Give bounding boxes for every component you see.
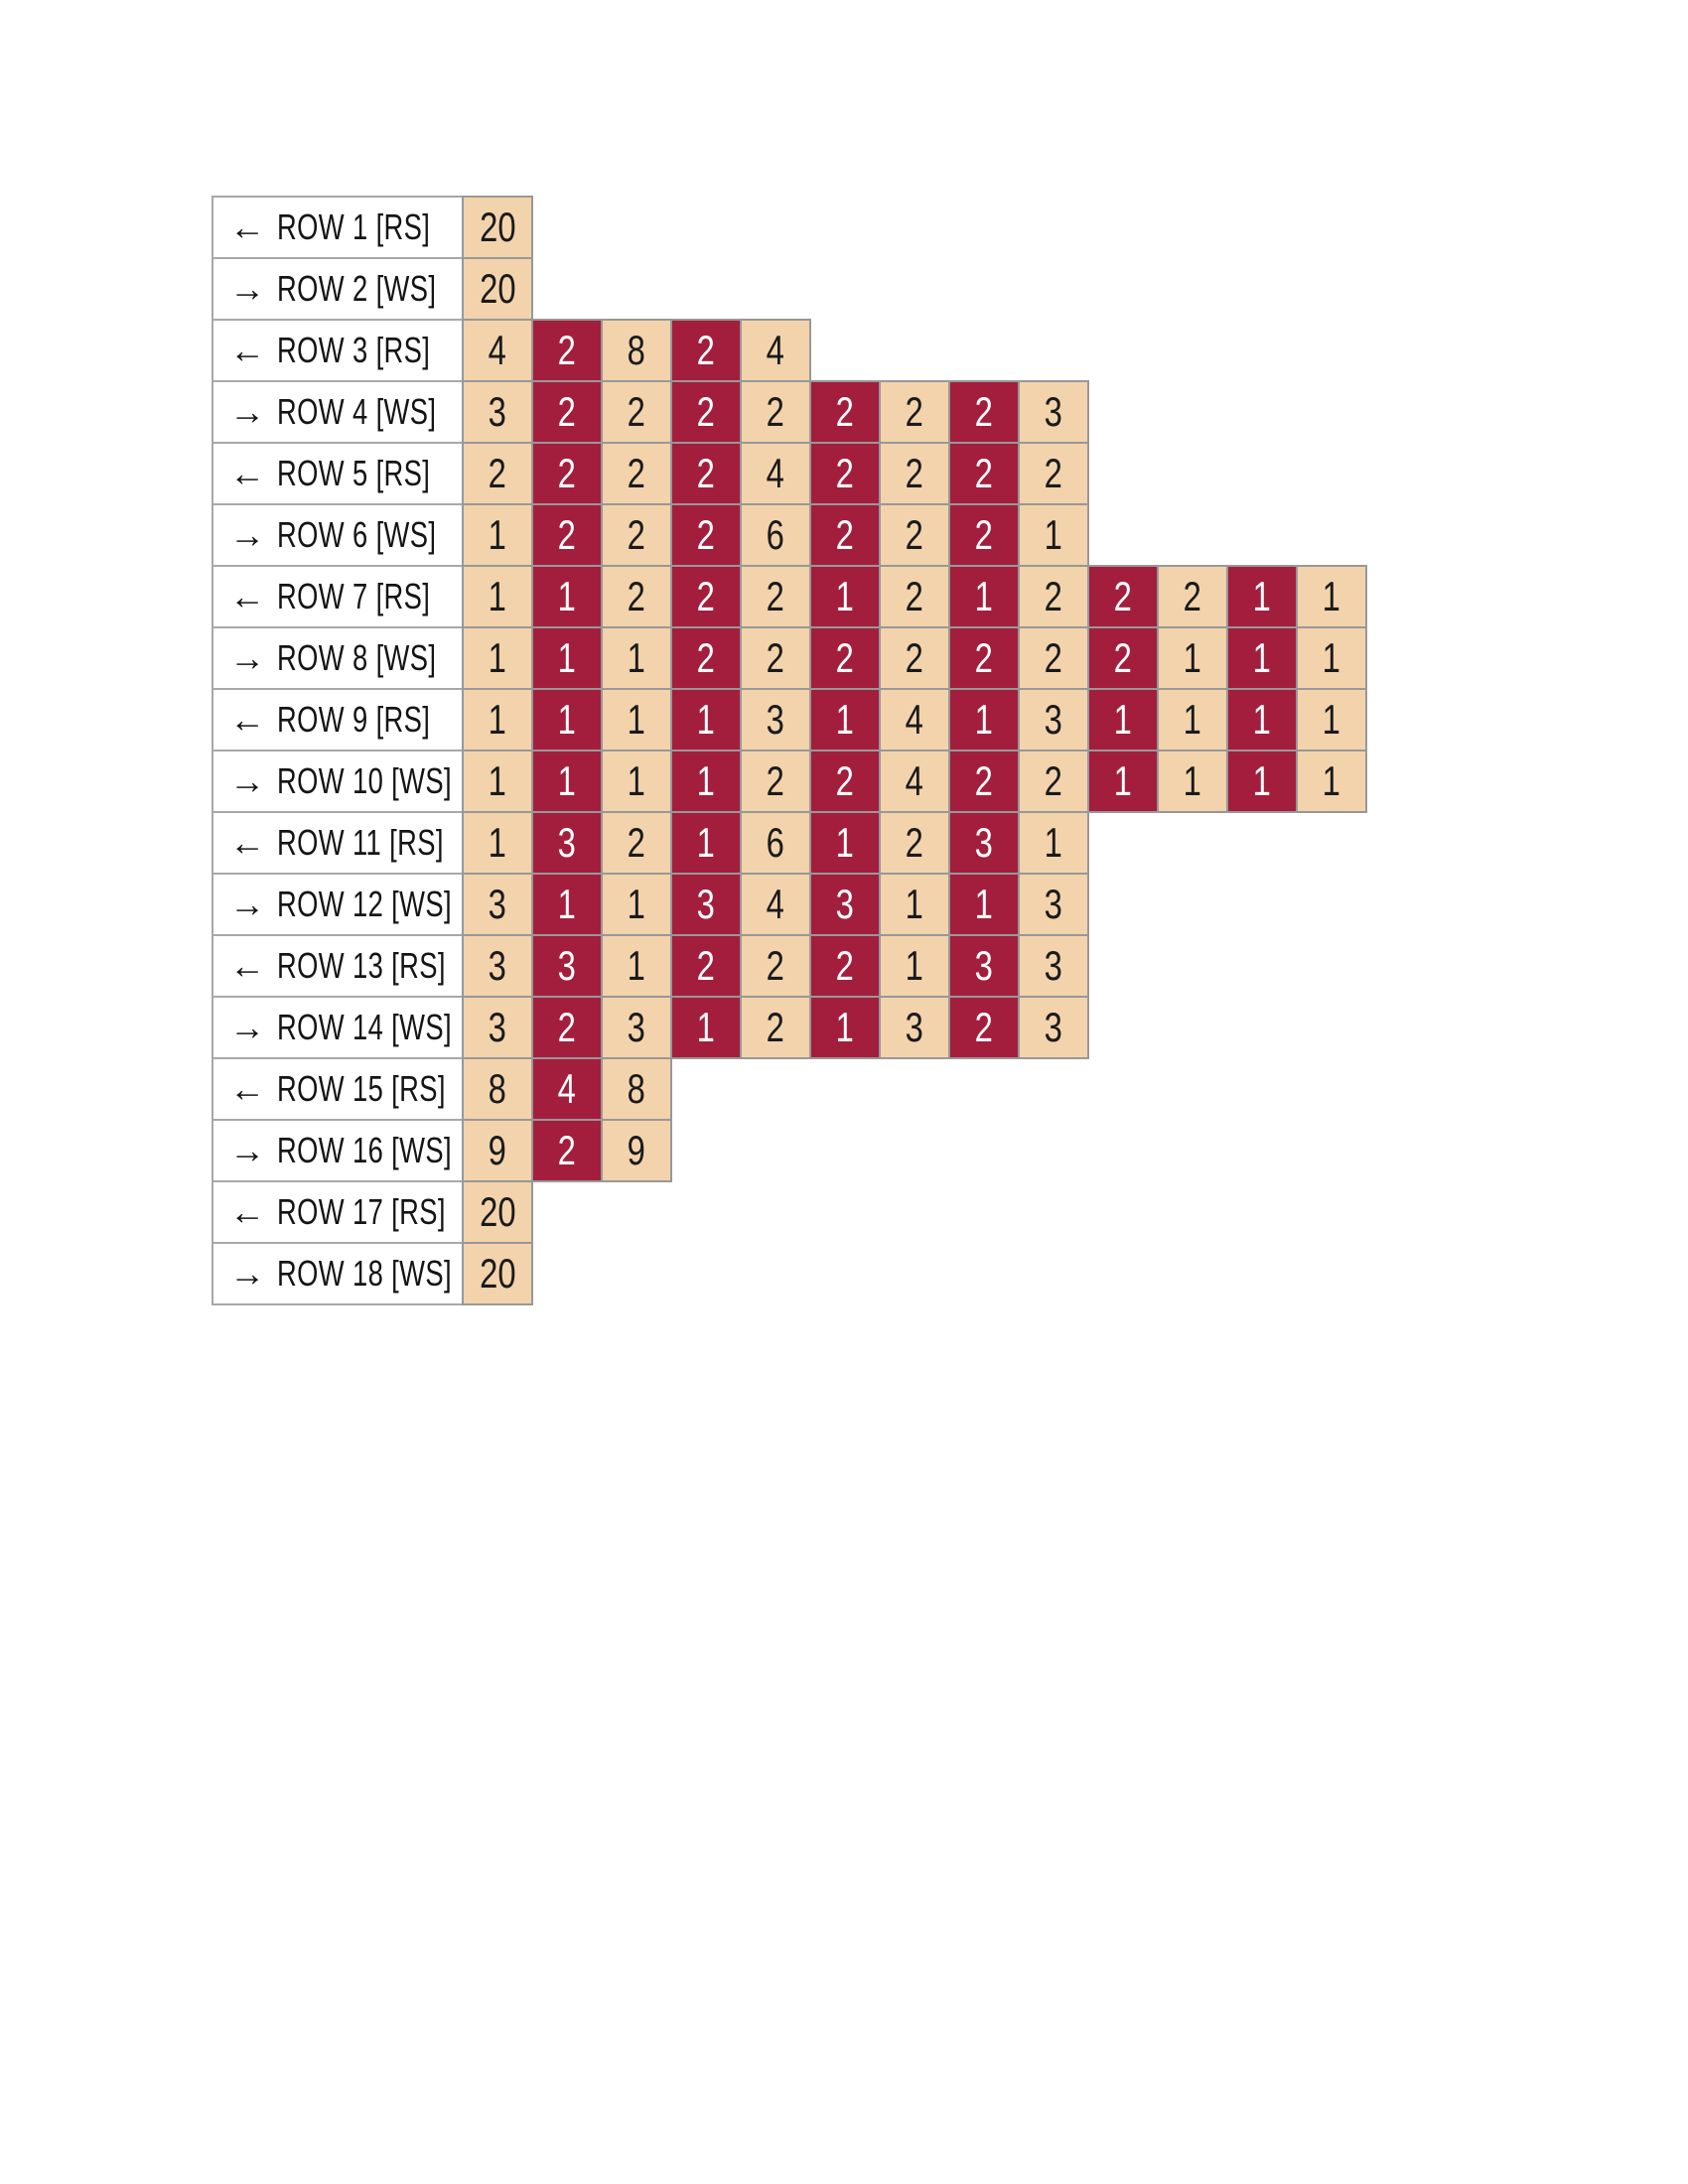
stitch-run-cell: 4 (740, 442, 811, 505)
stitch-run-cell: 8 (601, 319, 672, 382)
stitch-count: 1 (906, 945, 923, 987)
stitch-count: 2 (697, 514, 715, 556)
row-label: → ROW 6 [WS] (211, 503, 464, 567)
chart-row: → ROW 12 [WS] 311343113 (211, 873, 1367, 936)
direction-arrow-icon: → (229, 640, 265, 676)
stitch-count: 9 (628, 1130, 645, 1171)
stitch-run-cell: 1 (1087, 688, 1159, 751)
chart-row: ← ROW 15 [RS] 848 (211, 1057, 1367, 1121)
direction-arrow-icon: → (229, 271, 265, 307)
direction-arrow-icon: ← (229, 333, 265, 368)
stitch-count: 2 (558, 391, 576, 433)
stitch-run-cell: 3 (809, 873, 881, 936)
stitch-count: 4 (767, 330, 784, 371)
direction-arrow-icon: → (229, 517, 265, 553)
stitch-count: 2 (697, 576, 715, 617)
stitch-run-cell: 6 (740, 811, 811, 875)
stitch-run-cell: 3 (462, 873, 533, 936)
stitch-run-cell: 1 (1157, 626, 1228, 690)
stitch-count: 1 (836, 822, 854, 864)
stitch-count: 2 (558, 453, 576, 494)
stitch-run-cell: 20 (462, 1242, 533, 1305)
stitch-run-cell: 2 (462, 442, 533, 505)
stitch-run-cell: 1 (809, 811, 881, 875)
stitch-run-cell: 3 (670, 873, 742, 936)
direction-arrow-icon: → (229, 887, 265, 922)
direction-arrow-icon: ← (229, 209, 265, 245)
stitch-count: 2 (975, 453, 993, 494)
stitch-run-cell: 2 (1157, 565, 1228, 628)
stitch-run-cell: 3 (601, 996, 672, 1059)
stitch-run-cell: 2 (670, 565, 742, 628)
stitch-count: 3 (558, 822, 576, 864)
stitch-count: 1 (975, 699, 993, 741)
stitch-count: 3 (1045, 945, 1062, 987)
stitch-run-cell: 1 (462, 750, 533, 813)
stitch-count: 1 (836, 576, 854, 617)
stitch-run-cell: 1 (601, 934, 672, 998)
stitch-run-cell: 3 (462, 934, 533, 998)
stitch-count: 2 (767, 637, 784, 679)
stitch-count: 2 (767, 1007, 784, 1048)
stitch-run-cell: 1 (1296, 688, 1367, 751)
stitch-count: 1 (1045, 822, 1062, 864)
stitch-count: 2 (558, 330, 576, 371)
stitch-count: 1 (1184, 699, 1201, 741)
row-label-text: ROW 9 [RS] (277, 702, 430, 738)
stitch-run-cell: 2 (740, 996, 811, 1059)
stitch-run-cell: 9 (462, 1119, 533, 1182)
stitch-run-cell: 2 (948, 750, 1020, 813)
stitch-count: 3 (906, 1007, 923, 1048)
chart-row: → ROW 14 [WS] 323121323 (211, 996, 1367, 1059)
stitch-count: 1 (489, 822, 506, 864)
stitch-count: 8 (489, 1068, 506, 1110)
stitch-run-cell: 2 (879, 442, 950, 505)
stitch-count: 1 (1323, 576, 1340, 617)
stitch-count: 1 (558, 884, 576, 925)
row-label: → ROW 2 [WS] (211, 257, 464, 321)
stitch-run-cell: 1 (1087, 750, 1159, 813)
stitch-count: 20 (480, 206, 515, 248)
stitch-count: 2 (906, 576, 923, 617)
stitch-run-cell: 1 (601, 626, 672, 690)
row-label-text: ROW 7 [RS] (277, 579, 430, 614)
direction-arrow-icon: → (229, 1010, 265, 1045)
stitch-run-cell: 20 (462, 257, 533, 321)
stitch-count: 1 (697, 1007, 715, 1048)
stitch-count: 2 (628, 514, 645, 556)
direction-arrow-icon: → (229, 1133, 265, 1168)
stitch-count: 2 (836, 760, 854, 802)
stitch-run-cell: 2 (809, 380, 881, 444)
chart-row: ← ROW 3 [RS] 42824 (211, 319, 1367, 382)
stitch-run-cell: 3 (1018, 873, 1089, 936)
stitch-run-cell: 2 (601, 565, 672, 628)
stitch-run-cell: 2 (948, 380, 1020, 444)
stitch-count: 2 (697, 391, 715, 433)
row-label: ← ROW 9 [RS] (211, 688, 464, 751)
stitch-count: 2 (767, 945, 784, 987)
stitch-run-cell: 1 (809, 565, 881, 628)
stitch-count: 1 (1253, 576, 1271, 617)
stitch-run-cell: 2 (809, 750, 881, 813)
stitch-count: 1 (975, 576, 993, 617)
stitch-run-cell: 3 (879, 996, 950, 1059)
stitch-count: 3 (1045, 1007, 1062, 1048)
chart-row: → ROW 6 [WS] 122262221 (211, 503, 1367, 567)
direction-arrow-icon: ← (229, 702, 265, 738)
stitch-run-cell: 2 (601, 811, 672, 875)
stitch-run-cell: 3 (462, 380, 533, 444)
chart-row: → ROW 16 [WS] 929 (211, 1119, 1367, 1182)
stitch-count: 1 (1253, 699, 1271, 741)
direction-arrow-icon: ← (229, 1194, 265, 1230)
stitch-run-cell: 1 (601, 750, 672, 813)
stitch-count: 3 (767, 699, 784, 741)
row-label-text: ROW 3 [RS] (277, 333, 430, 368)
stitch-run-cell: 1 (1226, 626, 1298, 690)
row-label-text: ROW 5 [RS] (277, 456, 430, 491)
stitch-count: 1 (558, 760, 576, 802)
chart-row: → ROW 8 [WS] 1112222222111 (211, 626, 1367, 690)
stitch-run-cell: 1 (1226, 565, 1298, 628)
row-label: ← ROW 3 [RS] (211, 319, 464, 382)
stitch-run-cell: 1 (462, 565, 533, 628)
stitch-count: 2 (906, 453, 923, 494)
stitch-count: 2 (767, 391, 784, 433)
stitch-run-cell: 3 (462, 996, 533, 1059)
stitch-run-cell: 3 (1018, 934, 1089, 998)
stitch-count: 2 (767, 760, 784, 802)
stitch-run-cell: 1 (531, 626, 603, 690)
stitch-count: 8 (628, 1068, 645, 1110)
stitch-count: 1 (628, 884, 645, 925)
stitch-count: 2 (697, 453, 715, 494)
stitch-run-cell: 2 (531, 442, 603, 505)
stitch-count: 3 (628, 1007, 645, 1048)
stitch-count: 1 (489, 760, 506, 802)
stitch-count: 1 (1045, 514, 1062, 556)
stitch-count: 2 (836, 514, 854, 556)
stitch-run-cell: 2 (809, 934, 881, 998)
stitch-run-cell: 2 (879, 565, 950, 628)
row-label: ← ROW 17 [RS] (211, 1180, 464, 1244)
stitch-run-cell: 1 (462, 626, 533, 690)
stitch-run-cell: 1 (531, 873, 603, 936)
stitch-run-cell: 2 (740, 750, 811, 813)
stitch-count: 2 (975, 637, 993, 679)
stitch-count: 1 (1114, 760, 1132, 802)
stitch-count: 1 (628, 699, 645, 741)
stitch-run-cell: 2 (670, 934, 742, 998)
stitch-run-cell: 1 (601, 873, 672, 936)
stitch-run-cell: 3 (531, 811, 603, 875)
stitch-run-cell: 1 (1018, 811, 1089, 875)
row-label-text: ROW 2 [WS] (277, 271, 436, 307)
stitch-count: 1 (836, 1007, 854, 1048)
row-label-text: ROW 13 [RS] (277, 948, 446, 984)
row-label-text: ROW 11 [RS] (277, 825, 444, 861)
stitch-count: 1 (489, 699, 506, 741)
stitch-count: 1 (697, 822, 715, 864)
stitch-run-cell: 2 (879, 626, 950, 690)
stitch-run-cell: 2 (670, 319, 742, 382)
stitch-run-cell: 3 (1018, 996, 1089, 1059)
chart-row: ← ROW 5 [RS] 222242222 (211, 442, 1367, 505)
stitch-run-cell: 2 (1018, 442, 1089, 505)
stitch-count: 2 (975, 1007, 993, 1048)
stitch-run-cell: 3 (1018, 688, 1089, 751)
row-label: ← ROW 11 [RS] (211, 811, 464, 875)
stitch-run-cell: 2 (879, 811, 950, 875)
stitch-count: 2 (975, 760, 993, 802)
direction-arrow-icon: ← (229, 579, 265, 614)
stitch-run-cell: 2 (1018, 565, 1089, 628)
stitch-run-cell: 2 (948, 626, 1020, 690)
row-label: → ROW 8 [WS] (211, 626, 464, 690)
stitch-count: 1 (489, 576, 506, 617)
stitch-count: 2 (1045, 576, 1062, 617)
stitch-count: 3 (836, 884, 854, 925)
stitch-count: 2 (558, 514, 576, 556)
stitch-run-cell: 1 (531, 750, 603, 813)
stitch-run-cell: 1 (809, 996, 881, 1059)
stitch-run-cell: 3 (531, 934, 603, 998)
direction-arrow-icon: ← (229, 1071, 265, 1107)
stitch-count: 20 (480, 1191, 515, 1233)
chart-row: ← ROW 7 [RS] 1122212122211 (211, 565, 1367, 628)
stitch-count: 8 (628, 330, 645, 371)
stitch-run-cell: 2 (1087, 565, 1159, 628)
stitch-run-cell: 1 (1296, 626, 1367, 690)
stitch-run-cell: 2 (531, 1119, 603, 1182)
stitch-count: 2 (1114, 576, 1132, 617)
stitch-run-cell: 2 (740, 934, 811, 998)
stitch-run-cell: 2 (948, 442, 1020, 505)
chart-row: → ROW 4 [WS] 322222223 (211, 380, 1367, 444)
stitch-count: 1 (1184, 637, 1201, 679)
stitch-run-cell: 2 (809, 626, 881, 690)
direction-arrow-icon: ← (229, 456, 265, 491)
stitch-count: 1 (1323, 760, 1340, 802)
chart-row: ← ROW 11 [RS] 132161231 (211, 811, 1367, 875)
stitch-count: 6 (767, 514, 784, 556)
stitch-count: 20 (480, 1253, 515, 1295)
stitch-run-cell: 20 (462, 1180, 533, 1244)
stitch-count: 1 (628, 637, 645, 679)
chart-row: → ROW 18 [WS] 20 (211, 1242, 1367, 1305)
stitch-run-cell: 1 (462, 688, 533, 751)
stitch-count: 2 (628, 576, 645, 617)
row-label-text: ROW 10 [WS] (277, 763, 452, 799)
stitch-count: 1 (628, 945, 645, 987)
stitch-count: 3 (975, 822, 993, 864)
stitch-count: 2 (697, 637, 715, 679)
stitch-run-cell: 1 (1018, 503, 1089, 567)
chart-row: → ROW 10 [WS] 1111224221111 (211, 750, 1367, 813)
direction-arrow-icon: → (229, 1256, 265, 1292)
stitch-count: 2 (697, 330, 715, 371)
stitch-run-cell: 1 (531, 565, 603, 628)
stitch-run-cell: 3 (1018, 380, 1089, 444)
stitch-count: 4 (906, 760, 923, 802)
stitch-run-cell: 1 (670, 996, 742, 1059)
stitch-count: 1 (836, 699, 854, 741)
stitch-run-cell: 2 (670, 626, 742, 690)
stitch-run-cell: 1 (1226, 688, 1298, 751)
stitch-run-cell: 4 (462, 319, 533, 382)
stitch-count: 2 (1184, 576, 1201, 617)
stitch-run-cell: 1 (1226, 750, 1298, 813)
direction-arrow-icon: ← (229, 825, 265, 861)
stitch-run-cell: 1 (809, 688, 881, 751)
stitch-count: 1 (697, 699, 715, 741)
stitch-run-cell: 4 (740, 319, 811, 382)
chart-row: → ROW 2 [WS] 20 (211, 257, 1367, 321)
stitch-count: 4 (489, 330, 506, 371)
chart-row: ← ROW 17 [RS] 20 (211, 1180, 1367, 1244)
stitch-run-cell: 1 (462, 811, 533, 875)
stitch-count: 3 (1045, 699, 1062, 741)
stitch-count: 2 (975, 514, 993, 556)
stitch-run-cell: 3 (948, 934, 1020, 998)
stitch-run-cell: 1 (601, 688, 672, 751)
stitch-run-cell: 1 (1157, 688, 1228, 751)
stitch-count: 3 (558, 945, 576, 987)
row-label: → ROW 10 [WS] (211, 750, 464, 813)
stitch-count: 3 (489, 884, 506, 925)
stitch-run-cell: 1 (1296, 565, 1367, 628)
stitch-run-cell: 1 (462, 503, 533, 567)
stitch-count: 1 (1184, 760, 1201, 802)
stitch-count: 2 (836, 945, 854, 987)
stitch-run-cell: 2 (879, 503, 950, 567)
row-label-text: ROW 18 [WS] (277, 1256, 452, 1292)
stitch-count: 1 (558, 637, 576, 679)
chart-row: ← ROW 9 [RS] 1111314131111 (211, 688, 1367, 751)
stitch-run-cell: 2 (879, 380, 950, 444)
stitch-count: 2 (697, 945, 715, 987)
stitch-run-cell: 2 (601, 442, 672, 505)
stitch-count: 3 (1045, 391, 1062, 433)
stitch-count: 3 (975, 945, 993, 987)
stitch-run-cell: 2 (809, 503, 881, 567)
stitch-run-cell: 1 (1296, 750, 1367, 813)
stitch-count: 2 (558, 1130, 576, 1171)
stitch-count: 1 (1253, 637, 1271, 679)
stitch-run-cell: 2 (1087, 626, 1159, 690)
stitch-count: 1 (489, 514, 506, 556)
row-label: ← ROW 13 [RS] (211, 934, 464, 998)
stitch-run-cell: 2 (601, 503, 672, 567)
row-label: → ROW 4 [WS] (211, 380, 464, 444)
stitch-count: 1 (975, 884, 993, 925)
stitch-count: 2 (906, 822, 923, 864)
stitch-count: 2 (836, 391, 854, 433)
chart-row: ← ROW 13 [RS] 331222133 (211, 934, 1367, 998)
stitch-count: 1 (1114, 699, 1132, 741)
stitch-count: 1 (1323, 699, 1340, 741)
direction-arrow-icon: → (229, 394, 265, 430)
stitch-run-cell: 1 (670, 688, 742, 751)
stitch-count: 1 (906, 884, 923, 925)
stitch-count: 2 (906, 637, 923, 679)
stitch-run-cell: 9 (601, 1119, 672, 1182)
stitch-count: 4 (767, 453, 784, 494)
knitting-colorwork-chart: ← ROW 1 [RS] 20 → ROW 2 [WS] 20 ← ROW 3 … (211, 196, 1367, 1305)
stitch-run-cell: 2 (948, 503, 1020, 567)
row-label-text: ROW 17 [RS] (277, 1194, 446, 1230)
stitch-count: 2 (767, 576, 784, 617)
stitch-run-cell: 2 (531, 503, 603, 567)
row-label: ← ROW 15 [RS] (211, 1057, 464, 1121)
stitch-count: 1 (558, 699, 576, 741)
row-label: ← ROW 5 [RS] (211, 442, 464, 505)
row-label-text: ROW 8 [WS] (277, 640, 436, 676)
row-label-text: ROW 14 [WS] (277, 1010, 452, 1045)
stitch-run-cell: 1 (670, 811, 742, 875)
stitch-run-cell: 4 (879, 688, 950, 751)
stitch-count: 3 (489, 391, 506, 433)
row-label: ← ROW 7 [RS] (211, 565, 464, 628)
stitch-run-cell: 1 (531, 688, 603, 751)
stitch-count: 1 (558, 576, 576, 617)
stitch-count: 2 (1045, 637, 1062, 679)
stitch-count: 4 (767, 884, 784, 925)
stitch-run-cell: 6 (740, 503, 811, 567)
row-label: → ROW 14 [WS] (211, 996, 464, 1059)
chart-row: ← ROW 1 [RS] 20 (211, 196, 1367, 259)
stitch-run-cell: 1 (670, 750, 742, 813)
stitch-run-cell: 2 (670, 380, 742, 444)
stitch-run-cell: 2 (531, 319, 603, 382)
stitch-count: 2 (1045, 453, 1062, 494)
stitch-run-cell: 4 (879, 750, 950, 813)
direction-arrow-icon: → (229, 763, 265, 799)
stitch-run-cell: 2 (740, 380, 811, 444)
stitch-run-cell: 2 (670, 503, 742, 567)
stitch-run-cell: 1 (879, 873, 950, 936)
direction-arrow-icon: ← (229, 948, 265, 984)
stitch-count: 1 (1253, 760, 1271, 802)
row-label: → ROW 16 [WS] (211, 1119, 464, 1182)
stitch-run-cell: 8 (601, 1057, 672, 1121)
stitch-run-cell: 2 (531, 996, 603, 1059)
stitch-count: 2 (1045, 760, 1062, 802)
stitch-count: 1 (628, 760, 645, 802)
stitch-run-cell: 4 (531, 1057, 603, 1121)
stitch-count: 1 (489, 637, 506, 679)
stitch-count: 4 (906, 699, 923, 741)
stitch-count: 2 (906, 391, 923, 433)
stitch-count: 2 (836, 453, 854, 494)
row-label: → ROW 12 [WS] (211, 873, 464, 936)
stitch-run-cell: 2 (1018, 626, 1089, 690)
row-label-text: ROW 16 [WS] (277, 1133, 452, 1168)
row-label-text: ROW 4 [WS] (277, 394, 436, 430)
stitch-count: 4 (558, 1068, 576, 1110)
stitch-run-cell: 2 (809, 442, 881, 505)
stitch-run-cell: 1 (1157, 750, 1228, 813)
stitch-run-cell: 2 (670, 442, 742, 505)
row-label-text: ROW 12 [WS] (277, 887, 452, 922)
stitch-run-cell: 3 (740, 688, 811, 751)
stitch-run-cell: 2 (948, 996, 1020, 1059)
stitch-run-cell: 2 (1018, 750, 1089, 813)
stitch-count: 2 (906, 514, 923, 556)
stitch-run-cell: 2 (740, 626, 811, 690)
